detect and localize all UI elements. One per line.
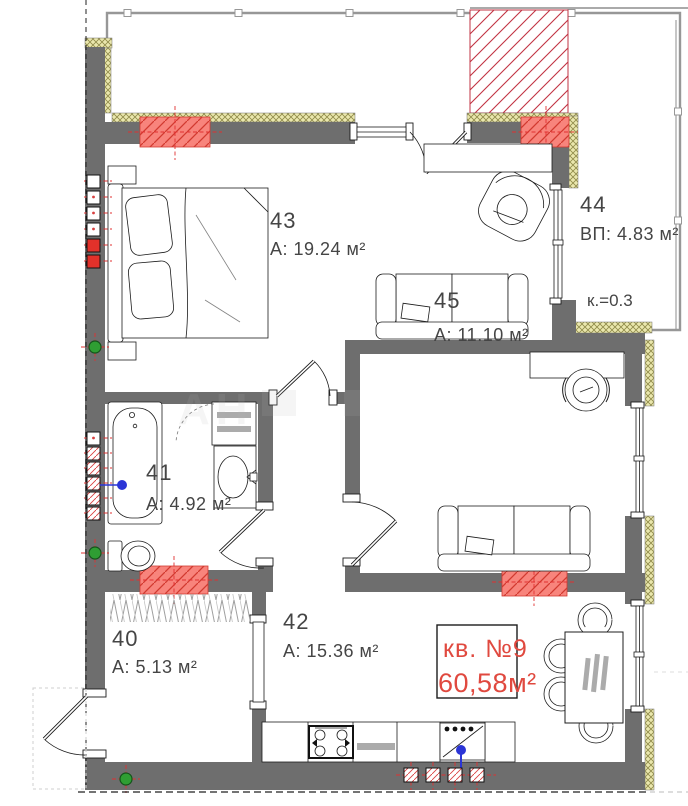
dining-table-set — [544, 603, 623, 743]
armchair — [473, 165, 556, 247]
window-kitchen-right — [631, 600, 644, 712]
wardrobe-hatch — [110, 594, 250, 622]
room-41-area: A: 4.92 м² — [146, 494, 231, 514]
room-42-area: A: 15.36 м² — [283, 641, 379, 661]
toilet — [108, 541, 155, 571]
wardrobe-top — [424, 144, 552, 172]
room-40-number: 40 — [112, 626, 138, 651]
plumbing-point — [117, 480, 127, 490]
window-balcony-wall — [550, 184, 563, 304]
storage-room-opening — [250, 615, 266, 709]
room-44-area: ВП: 4.83 м² — [580, 224, 679, 244]
apartment-label-box: кв. №9 60,58м² — [437, 625, 537, 698]
room-40-area: A: 5.13 м² — [112, 657, 197, 677]
shaft-hatched-area — [470, 10, 568, 113]
room-45-area: A: 11.10 м² — [434, 325, 529, 345]
window-bedroom-top — [350, 123, 413, 140]
room-45-number: 45 — [434, 288, 460, 313]
walls — [85, 47, 645, 790]
stove — [309, 726, 353, 758]
room-43-area: A: 19.24 м² — [270, 239, 366, 259]
sofa-living — [438, 506, 590, 571]
room-44-number: 44 — [580, 192, 606, 217]
bed — [108, 166, 268, 360]
plumbing-point — [456, 745, 466, 755]
room-42-number: 42 — [283, 609, 309, 634]
room-44-coefficient: к.=0.3 — [587, 291, 633, 310]
floor-plan-canvas: АН 43 A: 19.24 м² 44 ВП: 4.83 м² к.=0.3 … — [0, 0, 688, 806]
room-43-number: 43 — [270, 208, 296, 233]
entrance-door — [44, 689, 106, 758]
living-room-door — [343, 494, 396, 566]
room-41-number: 41 — [146, 460, 172, 485]
living-room-furniture — [438, 352, 624, 571]
watermark-text: АН — [178, 385, 254, 434]
window-living-right — [631, 402, 644, 518]
apartment-total-area: 60,58м² — [438, 668, 537, 698]
floor-plan-svg: АН 43 A: 19.24 м² 44 ВП: 4.83 м² к.=0.3 … — [0, 0, 688, 806]
apartment-number: кв. №9 — [443, 635, 528, 663]
